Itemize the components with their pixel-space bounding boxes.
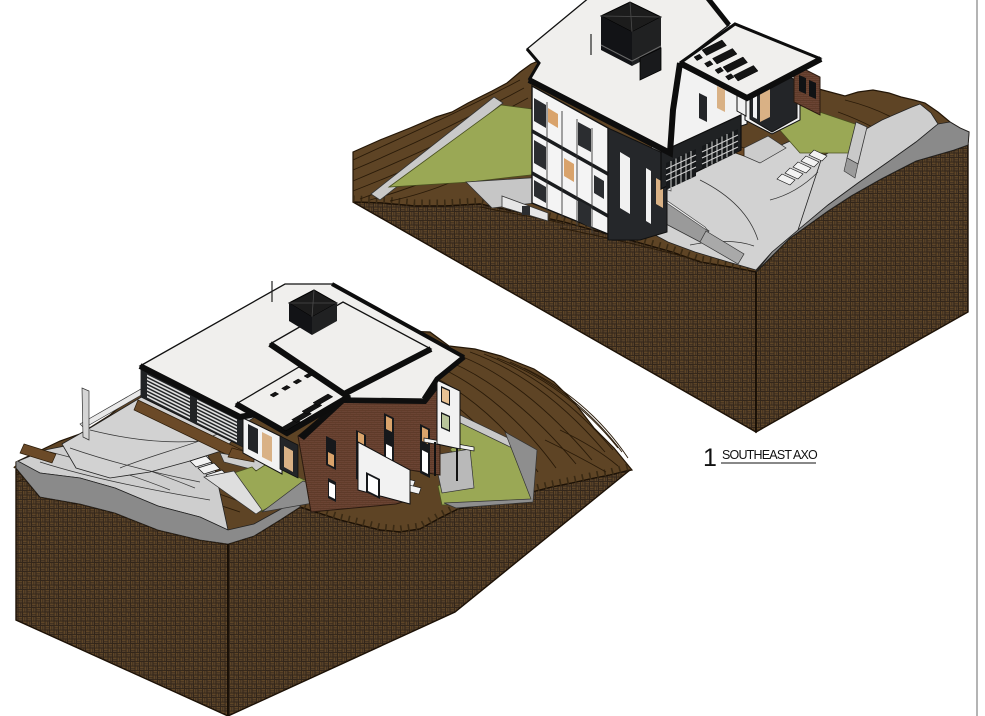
svg-text:1: 1: [703, 444, 717, 472]
svg-text:SOUTHEAST AXO: SOUTHEAST AXO: [722, 448, 818, 462]
